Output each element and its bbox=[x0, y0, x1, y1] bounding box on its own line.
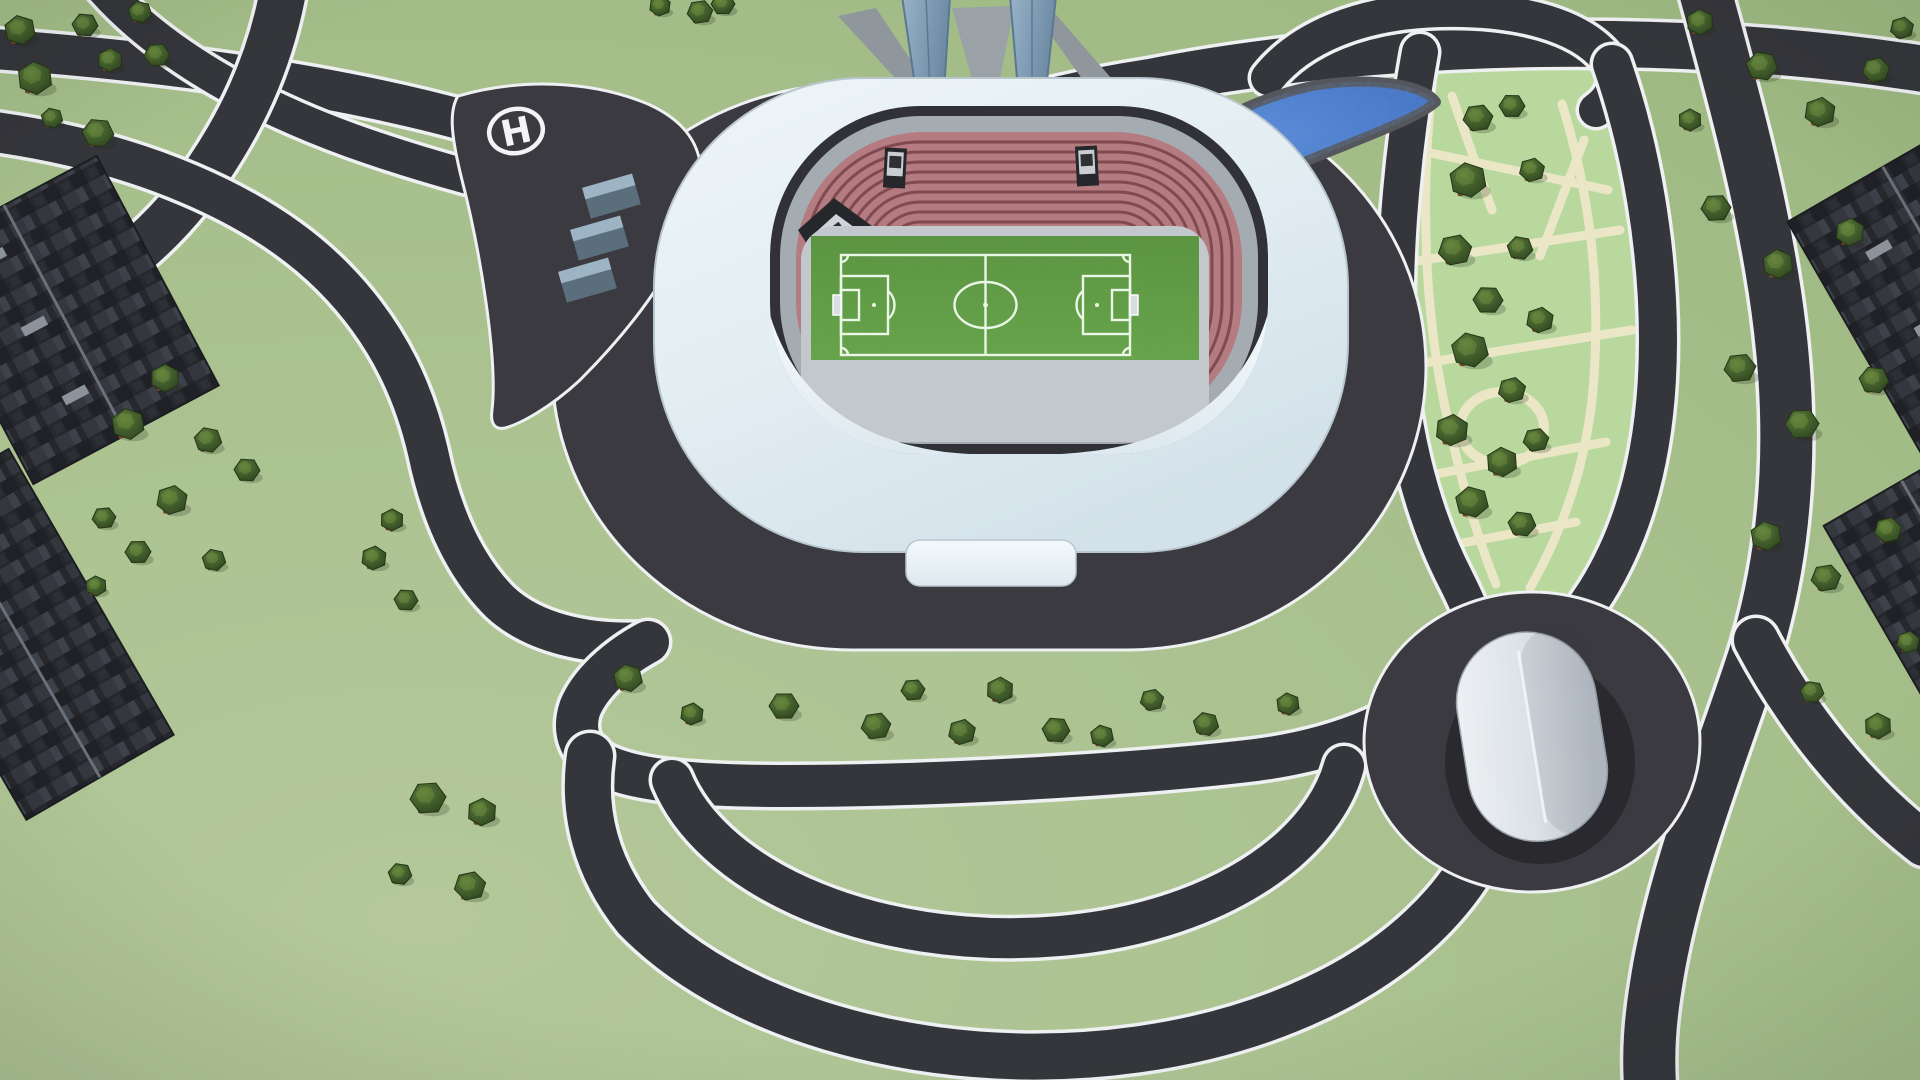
scene-map: H bbox=[0, 0, 1920, 1080]
football-pitch bbox=[811, 236, 1199, 360]
goal bbox=[833, 295, 841, 315]
stand-entrance bbox=[1075, 145, 1099, 186]
seating-bowl bbox=[770, 106, 1268, 458]
stand-entrance bbox=[883, 147, 907, 188]
goal bbox=[1130, 295, 1138, 315]
entrance-canopy bbox=[906, 540, 1076, 586]
football-stadium bbox=[654, 78, 1348, 586]
